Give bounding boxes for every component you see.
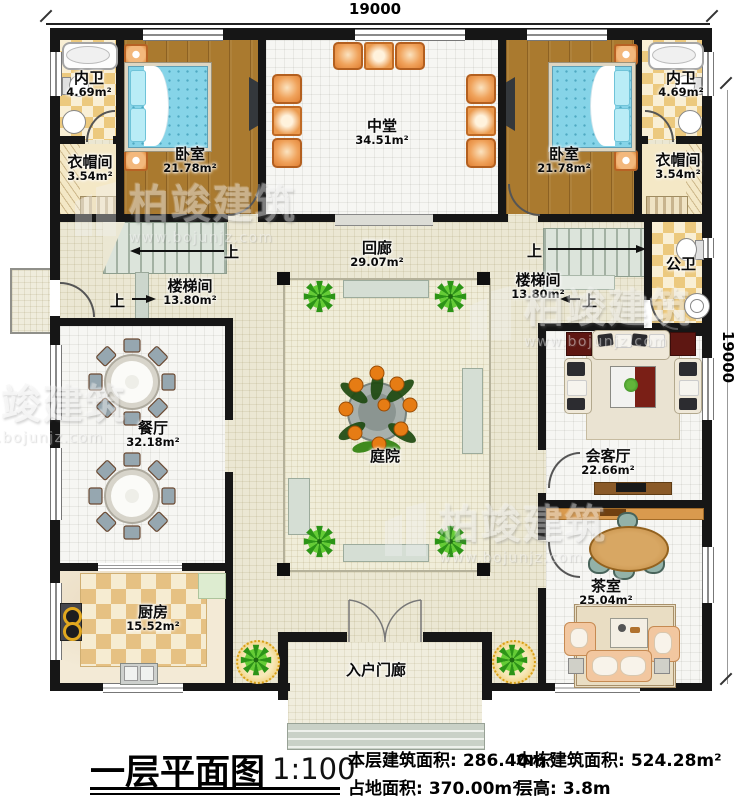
- room-name: 茶室: [566, 578, 646, 594]
- room-name: 餐厅: [114, 420, 192, 436]
- sink-basin: [140, 666, 154, 681]
- room-name: 卧室: [150, 146, 230, 162]
- nightstand: [614, 150, 638, 171]
- title-underline: [90, 787, 340, 790]
- hall-chair: [395, 42, 425, 70]
- stair-arrow-line: [140, 250, 224, 252]
- closet-shelf: [646, 196, 688, 216]
- tv-cabinet: [506, 77, 515, 131]
- room-area: 25.04m²: [566, 594, 646, 606]
- table-plant: [624, 378, 638, 392]
- bench: [343, 544, 429, 562]
- window: [355, 29, 465, 41]
- closet-shelf: [80, 196, 118, 216]
- armchair-cushion: [570, 628, 588, 648]
- sofa-cushion: [649, 334, 665, 348]
- sofa-cushion: [597, 333, 613, 347]
- room-name: 衣帽间: [644, 152, 712, 168]
- hall-threshold: [335, 214, 433, 226]
- wall: [538, 500, 702, 508]
- title-underline: [90, 793, 340, 795]
- window: [50, 448, 62, 520]
- bench: [462, 368, 483, 454]
- wall: [433, 214, 508, 222]
- stair-up-label: 上: [224, 241, 239, 262]
- bathtub-basin: [66, 46, 110, 64]
- sink-basin: [690, 299, 704, 313]
- room-area: 4.69m²: [650, 86, 712, 98]
- stat-value: 3.8m: [557, 779, 611, 799]
- room-name: 庭院: [358, 448, 412, 464]
- wall: [225, 571, 233, 683]
- dining-set: [87, 337, 177, 427]
- room-label-closet-left: 衣帽间 3.54m²: [56, 154, 124, 183]
- room-name: 厨房: [114, 604, 192, 620]
- room-label-bathroom-left: 内卫 4.69m²: [58, 70, 120, 99]
- stair-up-label: 上: [582, 290, 597, 311]
- room-name: 入户门廊: [330, 662, 422, 678]
- room-label-bathroom-right: 内卫 4.69m²: [650, 70, 712, 99]
- loveseat-cushion: [620, 656, 646, 676]
- hall-chair: [333, 42, 363, 70]
- room-label-living: 会客厅 22.66m²: [568, 448, 648, 477]
- stair-arrow-line: [132, 298, 146, 300]
- room-name: 楼梯间: [500, 272, 576, 288]
- nightstand: [124, 150, 148, 171]
- room-area: 3.54m²: [644, 168, 712, 180]
- hall-chair: [272, 74, 302, 104]
- wall: [258, 214, 335, 222]
- wall: [498, 40, 506, 222]
- pillow: [614, 108, 630, 142]
- room-area: 13.80m²: [152, 294, 228, 306]
- room-area: 15.52m²: [114, 620, 192, 632]
- stove-burner: [63, 622, 82, 641]
- room-label-corridor: 回廊 29.07m²: [342, 240, 412, 269]
- stair-arrow-line: [548, 248, 636, 250]
- sofa-cushion: [567, 362, 585, 376]
- wall: [676, 136, 702, 144]
- plan-scale: 1:100: [272, 752, 356, 786]
- palm-plant: [434, 525, 467, 558]
- room-area: 13.80m²: [500, 288, 576, 300]
- stat-label: 层高:: [516, 779, 557, 799]
- hall-table: [272, 106, 302, 136]
- bathtub-basin: [652, 46, 696, 64]
- stair-up-label: 上: [110, 290, 125, 311]
- room-area: 32.18m²: [114, 436, 192, 448]
- teapot: [618, 624, 626, 632]
- room-label-central-hall: 中堂 34.51m²: [342, 118, 422, 147]
- stat-label: 占地面积:: [348, 779, 423, 799]
- wall: [60, 214, 228, 222]
- sofa-cushion: [679, 362, 697, 376]
- column-post: [477, 272, 490, 285]
- stair-arrow-head: [636, 245, 646, 253]
- stat-label: 本层建筑面积:: [348, 751, 457, 771]
- stat-value: 370.00m²: [423, 779, 520, 799]
- wall: [60, 563, 98, 571]
- room-name: 衣帽间: [56, 154, 124, 170]
- window: [143, 29, 223, 41]
- room-name: 会客厅: [568, 448, 648, 464]
- counter-board: [198, 573, 226, 599]
- tea-table: [589, 526, 669, 572]
- room-area: 21.78m²: [524, 162, 604, 174]
- window: [702, 358, 714, 420]
- room-area: 34.51m²: [342, 134, 422, 146]
- pillow: [614, 70, 630, 106]
- sofa-cushion: [631, 333, 647, 347]
- room-entry-porch-floor: [288, 642, 482, 723]
- stairs-left: [103, 222, 227, 274]
- room-label-courtyard: 庭院: [358, 448, 412, 464]
- palm-plant: [303, 525, 336, 558]
- door-gap: [50, 280, 60, 316]
- floor-plan-canvas: 19000 19000: [0, 0, 750, 805]
- room-area: 22.66m²: [568, 464, 648, 476]
- sink: [62, 110, 86, 134]
- wall: [60, 318, 233, 326]
- dimension-tick: [720, 77, 733, 90]
- wall: [538, 214, 702, 222]
- sofa-cushion: [615, 334, 632, 348]
- room-area: 21.78m²: [150, 162, 230, 174]
- wall: [538, 588, 546, 683]
- armchair-cushion: [654, 632, 672, 654]
- room-label-dining: 餐厅 32.18m²: [114, 420, 192, 449]
- tv: [616, 483, 646, 492]
- window: [702, 547, 714, 603]
- wall: [182, 563, 233, 571]
- loveseat-cushion: [592, 656, 618, 676]
- side-table: [568, 658, 584, 674]
- room-name: 楼梯间: [152, 278, 228, 294]
- wall: [644, 222, 652, 300]
- window: [50, 345, 62, 420]
- sink-basin: [124, 666, 138, 681]
- room-label-stairwell-right: 楼梯间 13.80m²: [500, 272, 576, 301]
- side-table: [654, 658, 670, 674]
- room-name: 中堂: [342, 118, 422, 134]
- room-label-tea: 茶室 25.04m²: [566, 578, 646, 607]
- pillow: [130, 108, 146, 142]
- room-name: 回廊: [342, 240, 412, 256]
- dimension-top-label: 19000: [0, 0, 750, 18]
- hall-chair: [272, 138, 302, 168]
- dimension-right-label: 19000: [719, 325, 737, 389]
- room-area: 3.54m²: [56, 170, 124, 182]
- column-post: [477, 563, 490, 576]
- bed-sheet: [590, 66, 615, 146]
- bench: [343, 280, 429, 298]
- sink: [678, 110, 702, 134]
- hall-chair: [466, 74, 496, 104]
- column-post: [277, 563, 290, 576]
- room-name: 卧室: [524, 146, 604, 162]
- room-name: 内卫: [650, 70, 712, 86]
- room-label-public-wc: 公卫: [656, 256, 706, 272]
- room-label-entry-porch: 入户门廊: [330, 662, 422, 678]
- room-area: 4.69m²: [58, 86, 120, 98]
- wall: [225, 318, 233, 420]
- tea-center-table: [610, 618, 648, 648]
- window: [527, 29, 607, 41]
- end-table: [566, 332, 592, 356]
- room-label-stairwell-left: 楼梯间 13.80m²: [152, 278, 228, 307]
- wall: [225, 472, 233, 571]
- entry-double-door: [345, 598, 425, 644]
- tea-tray: [630, 627, 640, 633]
- stat-label: 本栋建筑面积:: [516, 751, 625, 771]
- room-label-closet-right: 衣帽间 3.54m²: [644, 152, 712, 181]
- stat-floor-height: 层高:3.8m: [516, 774, 611, 799]
- wall: [482, 632, 492, 700]
- wall: [60, 136, 85, 144]
- stat-land-area: 占地面积:370.00m²: [348, 774, 520, 799]
- room-label-kitchen: 厨房 15.52m²: [114, 604, 192, 633]
- dimension-tick: [720, 673, 733, 686]
- kitchen-sliding-door: [98, 563, 182, 571]
- hall-table: [364, 42, 394, 70]
- sofa-cushion: [679, 380, 699, 396]
- palm-plant: [240, 644, 272, 676]
- dimension-top-line: [46, 23, 710, 25]
- room-label-bedroom-left: 卧室 21.78m²: [150, 146, 230, 175]
- hall-chair: [466, 138, 496, 168]
- room-label-bedroom-right: 卧室 21.78m²: [524, 146, 604, 175]
- column-post: [277, 272, 290, 285]
- stat-value: 524.28m²: [625, 751, 722, 771]
- sofa-cushion: [679, 398, 697, 410]
- tv-cabinet: [249, 77, 258, 131]
- pillow: [130, 70, 146, 106]
- palm-plant: [434, 280, 467, 313]
- room-name: 内卫: [58, 70, 120, 86]
- palm-plant: [303, 280, 336, 313]
- room-name: 公卫: [656, 256, 706, 272]
- wall: [538, 331, 546, 450]
- wall: [258, 40, 266, 222]
- stat-building-area: 本栋建筑面积:524.28m²: [516, 746, 722, 771]
- dining-set: [87, 451, 177, 541]
- sofa-cushion: [567, 380, 587, 396]
- stair-up-label: 上: [527, 240, 542, 261]
- room-area: 29.07m²: [342, 256, 412, 268]
- end-table: [670, 332, 696, 356]
- wall: [278, 632, 347, 642]
- sofa-cushion: [567, 398, 585, 410]
- hall-table: [466, 106, 496, 136]
- palm-plant: [496, 644, 528, 676]
- wall: [116, 40, 124, 214]
- stair-arrow-head: [130, 247, 140, 255]
